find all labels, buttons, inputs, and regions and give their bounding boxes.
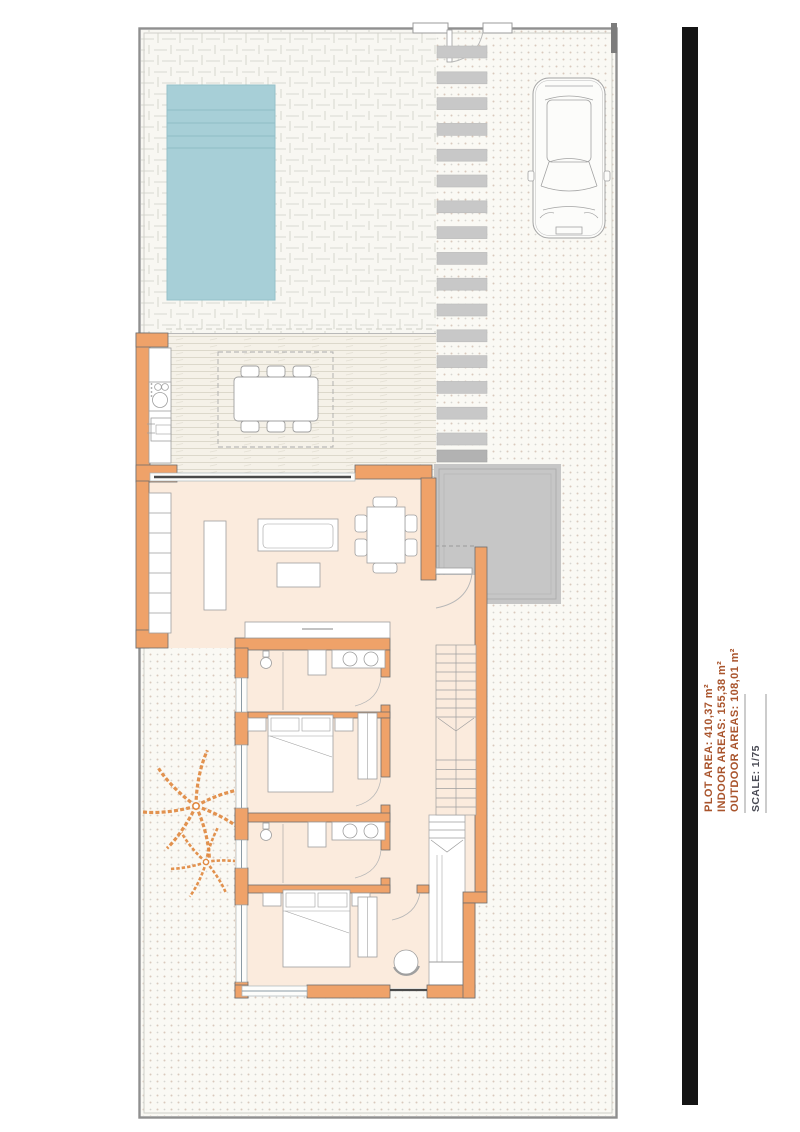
hob-burner	[162, 384, 169, 391]
nightstand	[335, 718, 353, 731]
basin	[364, 652, 378, 666]
chair	[355, 515, 367, 532]
bbq-unit	[151, 418, 171, 441]
toilet	[261, 658, 272, 669]
chair	[293, 366, 311, 377]
staircase	[436, 645, 476, 815]
table-top	[367, 507, 405, 563]
chair	[241, 421, 259, 432]
bathroom1-top-wall	[235, 638, 390, 650]
chair	[373, 497, 397, 507]
wardrobe	[358, 713, 377, 779]
indoor-areas-label: INDOOR AREAS: 155,38 m²	[716, 661, 728, 812]
chair	[293, 421, 311, 432]
double-bed	[268, 715, 333, 792]
wardrobe	[358, 897, 377, 957]
basin	[343, 652, 357, 666]
pillow	[271, 718, 299, 731]
shower-column	[308, 650, 326, 675]
shelving-unit	[149, 493, 171, 633]
floor-plan-drawing: PLOT AREA: 410,37 m² INDOOR AREAS: 155,3…	[0, 0, 800, 1132]
door-leaf	[436, 568, 472, 574]
toilet-cistern	[263, 651, 269, 657]
bedroom1-right-wall	[381, 718, 390, 777]
tv-sideboard	[204, 521, 226, 610]
table-top	[234, 377, 318, 421]
swimming-pool	[167, 85, 275, 300]
right-lower-wall	[463, 903, 475, 998]
chair	[405, 515, 417, 532]
floor-plan-sheet: PLOT AREA: 410,37 m² INDOOR AREAS: 155,3…	[0, 0, 800, 1132]
nightstand	[263, 893, 281, 906]
left-exterior-wall	[235, 808, 248, 840]
nightstand	[248, 718, 266, 731]
left-exterior-wall	[235, 868, 248, 905]
outdoor-dining-table	[234, 366, 318, 432]
gate-post	[483, 23, 512, 33]
pillow	[318, 893, 347, 907]
coffee-table	[277, 563, 320, 587]
chair	[373, 563, 397, 573]
living-left-wall	[136, 481, 149, 648]
toilet-cistern	[263, 823, 269, 829]
sofa	[258, 519, 338, 551]
toilet	[261, 830, 272, 841]
chair	[405, 539, 417, 556]
terrace-top-wall	[136, 333, 168, 347]
entry-side-wall	[421, 478, 436, 580]
pillow	[286, 893, 315, 907]
entry-threshold	[434, 575, 475, 604]
left-exterior-wall	[235, 712, 248, 745]
basin	[364, 824, 378, 838]
hob-burner	[155, 384, 162, 391]
bottom-wall	[307, 985, 390, 998]
bath2-bed2-partition	[417, 885, 429, 893]
terrace-left-wall	[136, 333, 150, 482]
chair	[241, 366, 259, 377]
sliding-glass-door	[150, 473, 355, 481]
shower-column	[308, 822, 326, 847]
double-bed	[283, 890, 350, 967]
scale-label: SCALE: 1/75	[750, 745, 762, 812]
sheet-edge-bar	[682, 27, 698, 1105]
title-block: PLOT AREA: 410,37 m² INDOOR AREAS: 155,3…	[703, 648, 766, 813]
chair	[355, 539, 367, 556]
right-exterior-wall	[475, 547, 487, 892]
side-mirror	[528, 171, 534, 181]
bed1-bath2-partition	[235, 813, 390, 822]
gate-post	[413, 23, 448, 33]
media-counter	[245, 622, 390, 638]
outdoor-kitchen	[147, 348, 171, 463]
basin	[343, 824, 357, 838]
chair	[267, 421, 285, 432]
chair	[267, 366, 285, 377]
outdoor-areas-label: OUTDOOR AREAS: 108,01 m²	[729, 648, 741, 812]
left-exterior-wall	[235, 648, 248, 678]
plot-area-label: PLOT AREA: 410,37 m²	[703, 684, 715, 812]
porch-step-stone	[437, 450, 487, 462]
right-wall-jog	[463, 892, 487, 903]
parked-car	[528, 78, 610, 238]
pillow	[302, 718, 330, 731]
sink	[153, 393, 168, 408]
boundary-corner-post	[611, 23, 617, 53]
under-stair-room	[429, 815, 465, 985]
side-mirror	[604, 171, 610, 181]
living-top-wall	[355, 465, 432, 479]
